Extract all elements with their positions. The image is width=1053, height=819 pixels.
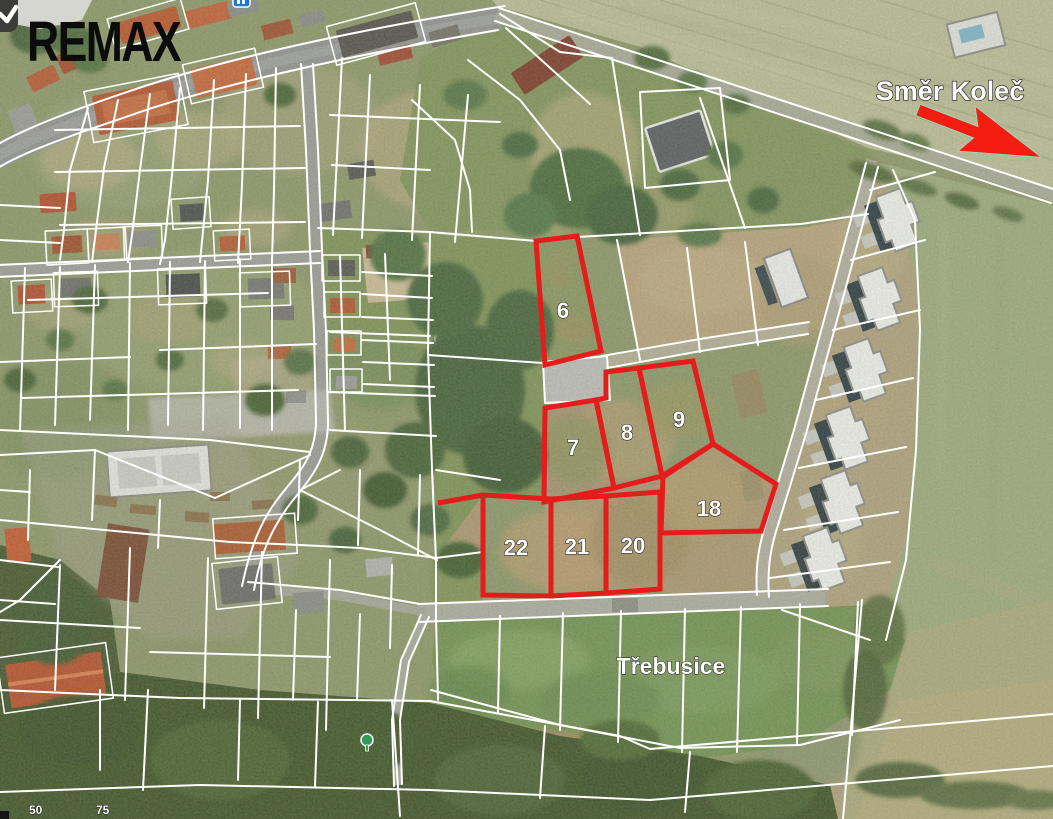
svg-text:75: 75 [96, 803, 110, 817]
svg-text:6: 6 [557, 298, 569, 323]
svg-text:18: 18 [697, 496, 721, 521]
svg-text:50: 50 [29, 803, 43, 817]
svg-text:22: 22 [504, 535, 528, 560]
svg-text:Třebusice: Třebusice [617, 653, 726, 679]
svg-text:REMAX: REMAX [27, 10, 182, 74]
svg-text:7: 7 [567, 435, 579, 460]
svg-text:8: 8 [621, 420, 633, 445]
svg-text:Směr Koleč: Směr Koleč [876, 76, 1025, 106]
svg-text:20: 20 [621, 533, 645, 558]
svg-text:21: 21 [565, 534, 589, 559]
svg-text:9: 9 [673, 407, 685, 432]
